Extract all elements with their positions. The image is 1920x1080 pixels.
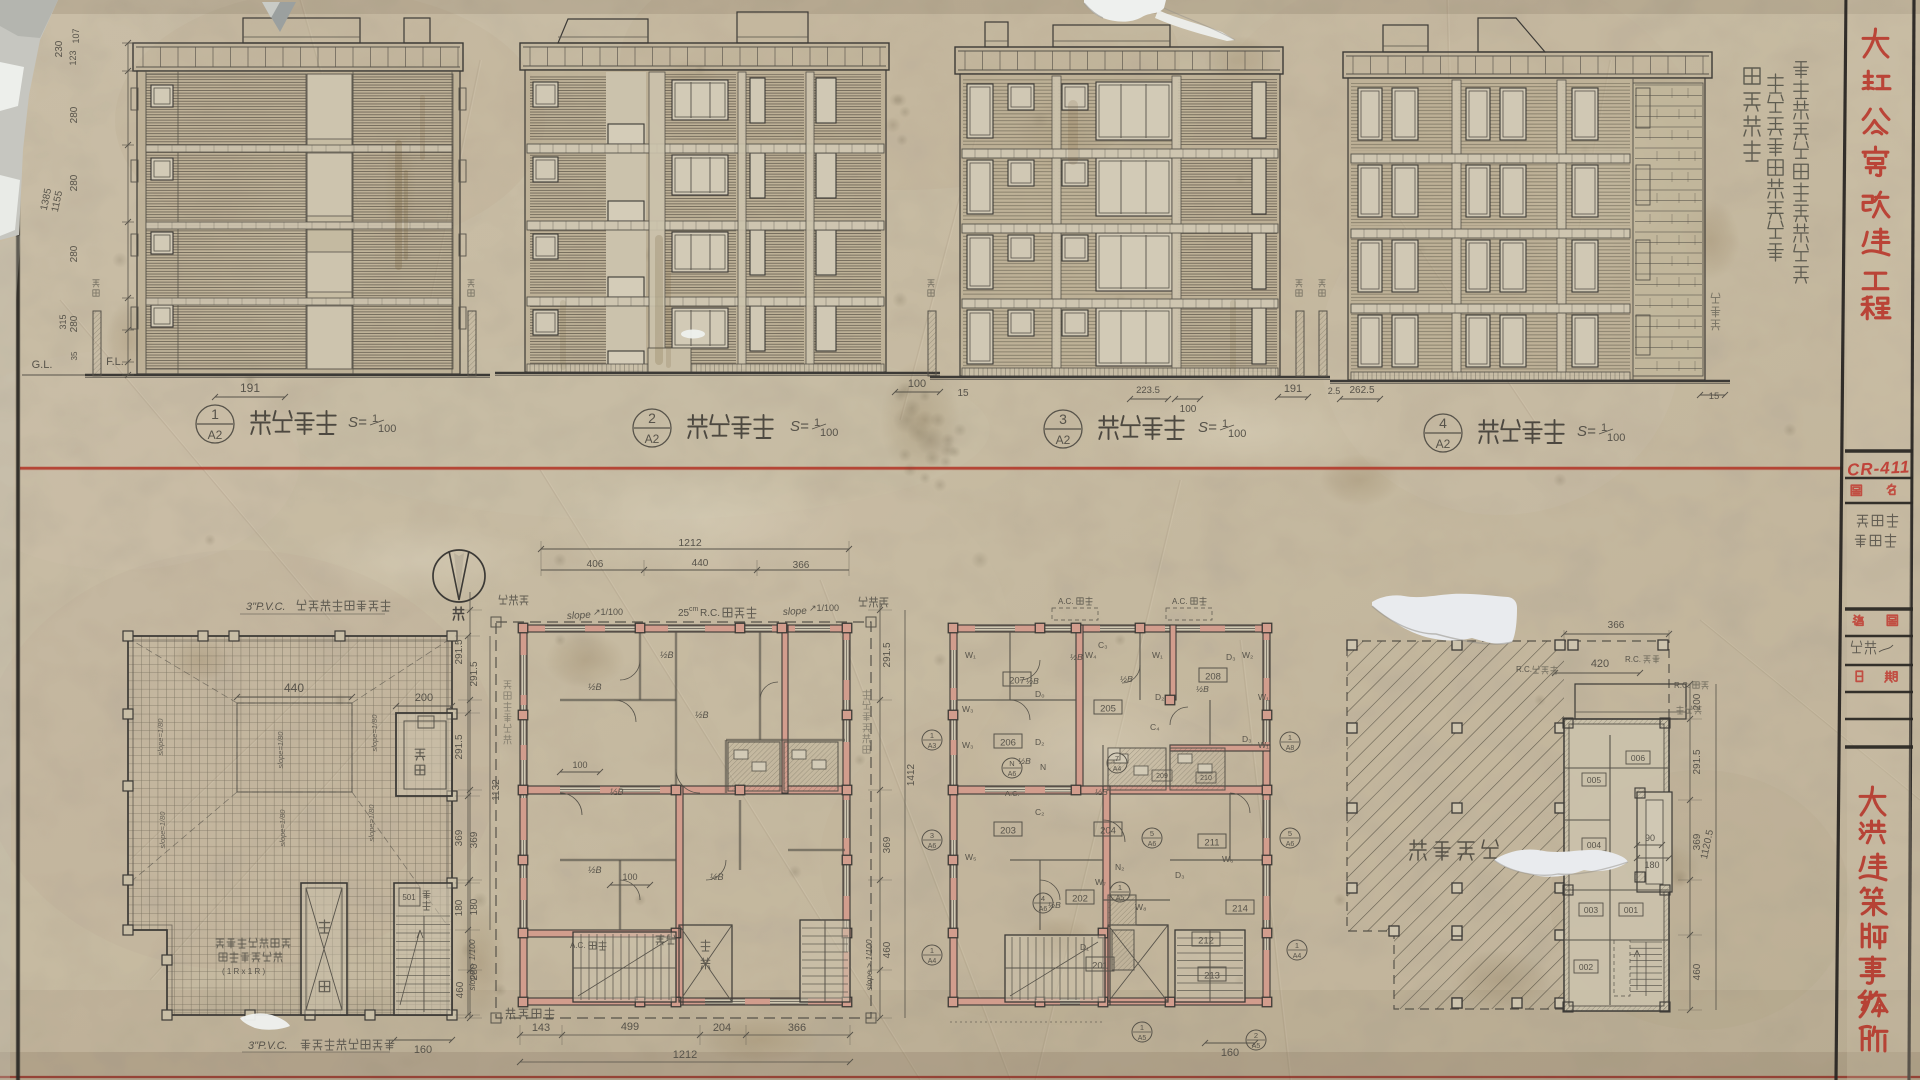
svg-text:2.5: 2.5 [1328, 386, 1341, 396]
svg-text:3: 3 [930, 831, 934, 840]
svg-text:D₂: D₂ [1155, 692, 1164, 702]
svg-text:262.5: 262.5 [1349, 385, 1374, 396]
svg-text:A8: A8 [1286, 745, 1295, 752]
svg-text:280: 280 [69, 106, 80, 123]
svg-text:S=: S= [1198, 419, 1217, 436]
svg-text:207: 207 [1009, 676, 1025, 687]
svg-text:501: 501 [402, 893, 416, 902]
svg-text:2: 2 [1254, 1031, 1258, 1040]
svg-text:280: 280 [69, 174, 80, 191]
svg-text:½B: ½B [610, 787, 624, 797]
svg-text:slope=1/80: slope=1/80 [158, 811, 167, 849]
svg-text:1: 1 [1295, 941, 1299, 950]
svg-text:206: 206 [1000, 738, 1016, 749]
svg-text:143: 143 [532, 1022, 550, 1034]
svg-text:G.L.: G.L. [32, 359, 53, 371]
svg-text:½B: ½B [1120, 674, 1133, 684]
svg-text:25: 25 [678, 608, 690, 619]
svg-text:366: 366 [793, 560, 810, 571]
svg-text:A2: A2 [645, 432, 660, 446]
svg-text:slope: slope [783, 606, 808, 618]
svg-text:½B: ½B [588, 682, 602, 692]
svg-text:W₅: W₅ [965, 852, 976, 862]
svg-text:191: 191 [240, 381, 260, 395]
svg-text:R.C.: R.C. [1516, 665, 1532, 674]
svg-text:200: 200 [1692, 693, 1703, 710]
svg-text:A.C.: A.C. [1058, 597, 1074, 606]
svg-text:291.5: 291.5 [469, 661, 480, 686]
svg-text:208: 208 [1205, 672, 1221, 683]
svg-text:N: N [1040, 762, 1046, 772]
svg-text:D₃: D₃ [1226, 652, 1236, 662]
svg-text:R.C.: R.C. [1625, 655, 1641, 664]
svg-text:005: 005 [1587, 775, 1601, 785]
svg-text:W₁: W₁ [965, 650, 976, 660]
svg-text:230: 230 [54, 40, 65, 57]
svg-text:½B: ½B [660, 650, 674, 660]
svg-text:006: 006 [1631, 753, 1645, 763]
svg-text:N: N [1009, 759, 1014, 768]
svg-text:209: 209 [1156, 773, 1168, 780]
svg-text:slope: slope [567, 610, 592, 622]
svg-text:1: 1 [1140, 1023, 1144, 1032]
svg-text:223.5: 223.5 [1136, 385, 1160, 396]
svg-text:1: 1 [211, 406, 219, 422]
svg-text:001: 001 [1624, 905, 1638, 915]
svg-text:½B: ½B [710, 872, 724, 882]
svg-text:½B: ½B [1196, 684, 1209, 694]
svg-text:440: 440 [692, 558, 709, 569]
svg-text:200: 200 [415, 692, 433, 704]
svg-text:1: 1 [930, 731, 934, 740]
svg-text:A.C.: A.C. [570, 941, 586, 950]
svg-text:90: 90 [1645, 833, 1655, 843]
svg-text:½B: ½B [1048, 900, 1061, 910]
svg-text:002: 002 [1579, 962, 1593, 972]
svg-text:S=: S= [790, 418, 809, 435]
svg-text:460: 460 [882, 941, 893, 958]
svg-text:369: 369 [469, 831, 480, 848]
svg-text:3"P.V.C.: 3"P.V.C. [248, 1040, 288, 1052]
svg-text:½B: ½B [1095, 787, 1108, 797]
svg-text:slope=1/80: slope=1/80 [156, 718, 165, 756]
svg-text:slope=1/80: slope=1/80 [370, 714, 379, 752]
svg-text:½B: ½B [695, 710, 709, 720]
svg-text:slope > 1/100: slope > 1/100 [864, 939, 874, 991]
svg-text:S=: S= [1577, 423, 1596, 440]
svg-text:↗1/100: ↗1/100 [593, 607, 623, 617]
svg-text:A.C.: A.C. [1005, 789, 1020, 798]
svg-text:7: 7 [1115, 754, 1119, 763]
svg-text:1212: 1212 [673, 1049, 697, 1061]
svg-text:213: 213 [1204, 971, 1220, 982]
svg-text:W₆: W₆ [1222, 854, 1233, 864]
svg-text:100: 100 [908, 378, 926, 390]
svg-text:S=: S= [348, 414, 367, 431]
svg-text:211: 211 [1204, 838, 1219, 849]
svg-text:C₃: C₃ [1098, 640, 1108, 650]
svg-text:2: 2 [648, 410, 656, 426]
svg-text:A.C.: A.C. [1172, 597, 1188, 606]
svg-text:3: 3 [1059, 411, 1067, 427]
svg-text:201: 201 [1092, 961, 1108, 972]
svg-text:280: 280 [69, 315, 80, 332]
svg-text:½B: ½B [1018, 756, 1031, 766]
svg-text:A5: A5 [1138, 1035, 1147, 1042]
svg-text:1: 1 [930, 946, 934, 955]
svg-text:291.5: 291.5 [1692, 749, 1703, 774]
svg-text:1: 1 [1288, 733, 1292, 742]
svg-text:A3: A3 [928, 743, 937, 750]
svg-text:A5: A5 [1252, 1043, 1261, 1050]
svg-text:cm: cm [689, 606, 699, 613]
svg-text:406: 406 [587, 559, 604, 570]
svg-text:A6: A6 [1039, 906, 1048, 913]
svg-text:202: 202 [1072, 894, 1088, 905]
svg-text:A2: A2 [208, 428, 223, 442]
svg-text:205: 205 [1100, 704, 1116, 715]
svg-text:C₄: C₄ [1150, 722, 1160, 732]
svg-text:slope > 1/100: slope > 1/100 [467, 939, 477, 991]
svg-text:212: 212 [1198, 936, 1214, 947]
svg-text:C₂: C₂ [1035, 807, 1044, 817]
svg-text:D₁: D₁ [1080, 942, 1089, 952]
svg-text:291.5: 291.5 [882, 642, 893, 667]
svg-text:280: 280 [69, 245, 80, 262]
svg-text:369: 369 [882, 836, 893, 853]
svg-text:100: 100 [820, 427, 838, 439]
svg-text:A4: A4 [1293, 953, 1302, 960]
svg-text:slope=1/80: slope=1/80 [367, 804, 376, 842]
svg-text:W₇: W₇ [1095, 877, 1106, 887]
svg-text:1212: 1212 [678, 537, 702, 549]
svg-text:291.5: 291.5 [454, 639, 465, 664]
svg-text:W₈: W₈ [1135, 902, 1147, 912]
svg-text:4: 4 [1041, 894, 1045, 903]
svg-text:004: 004 [1587, 840, 1601, 850]
svg-text:160: 160 [414, 1044, 432, 1056]
svg-text:A6: A6 [928, 843, 937, 850]
svg-text:N₂: N₂ [1115, 862, 1124, 872]
svg-text:R.C.: R.C. [700, 608, 720, 619]
svg-text:214: 214 [1232, 904, 1248, 915]
svg-text:A6: A6 [1286, 841, 1295, 848]
svg-text:D₀: D₀ [1035, 689, 1045, 699]
svg-text:W₂: W₂ [1242, 650, 1253, 660]
svg-text:½B: ½B [1026, 676, 1039, 686]
svg-text:003: 003 [1584, 905, 1598, 915]
svg-text:D₂: D₂ [1035, 737, 1044, 747]
svg-text:W₃: W₃ [962, 740, 973, 750]
svg-text:4: 4 [1439, 415, 1447, 431]
svg-text:slope=1/80: slope=1/80 [276, 731, 285, 769]
svg-text:5: 5 [1288, 829, 1292, 838]
svg-text:100: 100 [378, 423, 396, 435]
svg-text:100: 100 [572, 760, 587, 770]
svg-text:460: 460 [455, 981, 466, 998]
svg-text:369: 369 [454, 829, 465, 846]
svg-text:½B: ½B [588, 865, 602, 875]
svg-text:A2: A2 [1436, 437, 1451, 451]
svg-text:100: 100 [1607, 432, 1625, 444]
svg-text:W₁: W₁ [1258, 692, 1269, 702]
svg-text:100: 100 [1228, 428, 1246, 440]
svg-text:R.C.: R.C. [1674, 681, 1690, 690]
svg-text:A2: A2 [1056, 433, 1071, 447]
svg-text:A4: A4 [928, 958, 937, 965]
svg-text:315: 315 [58, 314, 68, 329]
svg-text:1412: 1412 [906, 763, 917, 786]
svg-text:3"P.V.C.: 3"P.V.C. [246, 601, 286, 613]
svg-text:( 1 R x 1 R ): ( 1 R x 1 R ) [222, 967, 265, 976]
svg-text:D₃: D₃ [1175, 870, 1185, 880]
svg-text:W₁: W₁ [1152, 650, 1163, 660]
svg-text:F.L.: F.L. [106, 356, 124, 368]
svg-text:460: 460 [1692, 963, 1703, 980]
svg-text:slope=1/80: slope=1/80 [278, 809, 287, 847]
svg-text:191: 191 [1284, 383, 1302, 395]
svg-text:100: 100 [622, 872, 637, 882]
svg-text:291.5: 291.5 [454, 734, 465, 759]
svg-text:W₄: W₄ [1085, 650, 1097, 660]
svg-text:420: 420 [1591, 658, 1609, 670]
svg-text:A6: A6 [1148, 841, 1157, 848]
svg-text:100: 100 [1180, 404, 1197, 415]
svg-text:15: 15 [957, 388, 969, 399]
svg-text:204: 204 [713, 1022, 731, 1034]
svg-text:W₁: W₁ [1258, 740, 1269, 750]
svg-text:D₃: D₃ [1242, 734, 1252, 744]
svg-text:A5: A5 [1116, 895, 1125, 902]
svg-text:107: 107 [71, 28, 81, 43]
svg-text:5: 5 [1150, 829, 1154, 838]
svg-text:15: 15 [1709, 391, 1720, 402]
svg-text:W₃: W₃ [962, 704, 973, 714]
svg-text:123: 123 [68, 50, 78, 65]
svg-text:A4: A4 [1113, 766, 1122, 773]
svg-text:203: 203 [1000, 826, 1016, 837]
svg-text:↗1/100: ↗1/100 [809, 603, 839, 613]
svg-text:180: 180 [454, 899, 465, 916]
svg-text:180: 180 [469, 898, 480, 915]
svg-text:CR-411: CR-411 [1847, 457, 1911, 479]
svg-text:½B: ½B [1070, 652, 1083, 662]
svg-text:160: 160 [1221, 1047, 1239, 1059]
svg-text:366: 366 [1608, 620, 1625, 631]
svg-text:204: 204 [1100, 826, 1116, 837]
svg-text:440: 440 [284, 681, 304, 695]
svg-text:A6: A6 [1008, 771, 1017, 778]
svg-text:366: 366 [788, 1022, 806, 1034]
svg-text:499: 499 [621, 1021, 639, 1033]
svg-text:210: 210 [1200, 775, 1212, 782]
svg-text:180: 180 [1644, 860, 1659, 870]
svg-text:1: 1 [1118, 883, 1122, 892]
svg-text:35: 35 [70, 351, 79, 360]
